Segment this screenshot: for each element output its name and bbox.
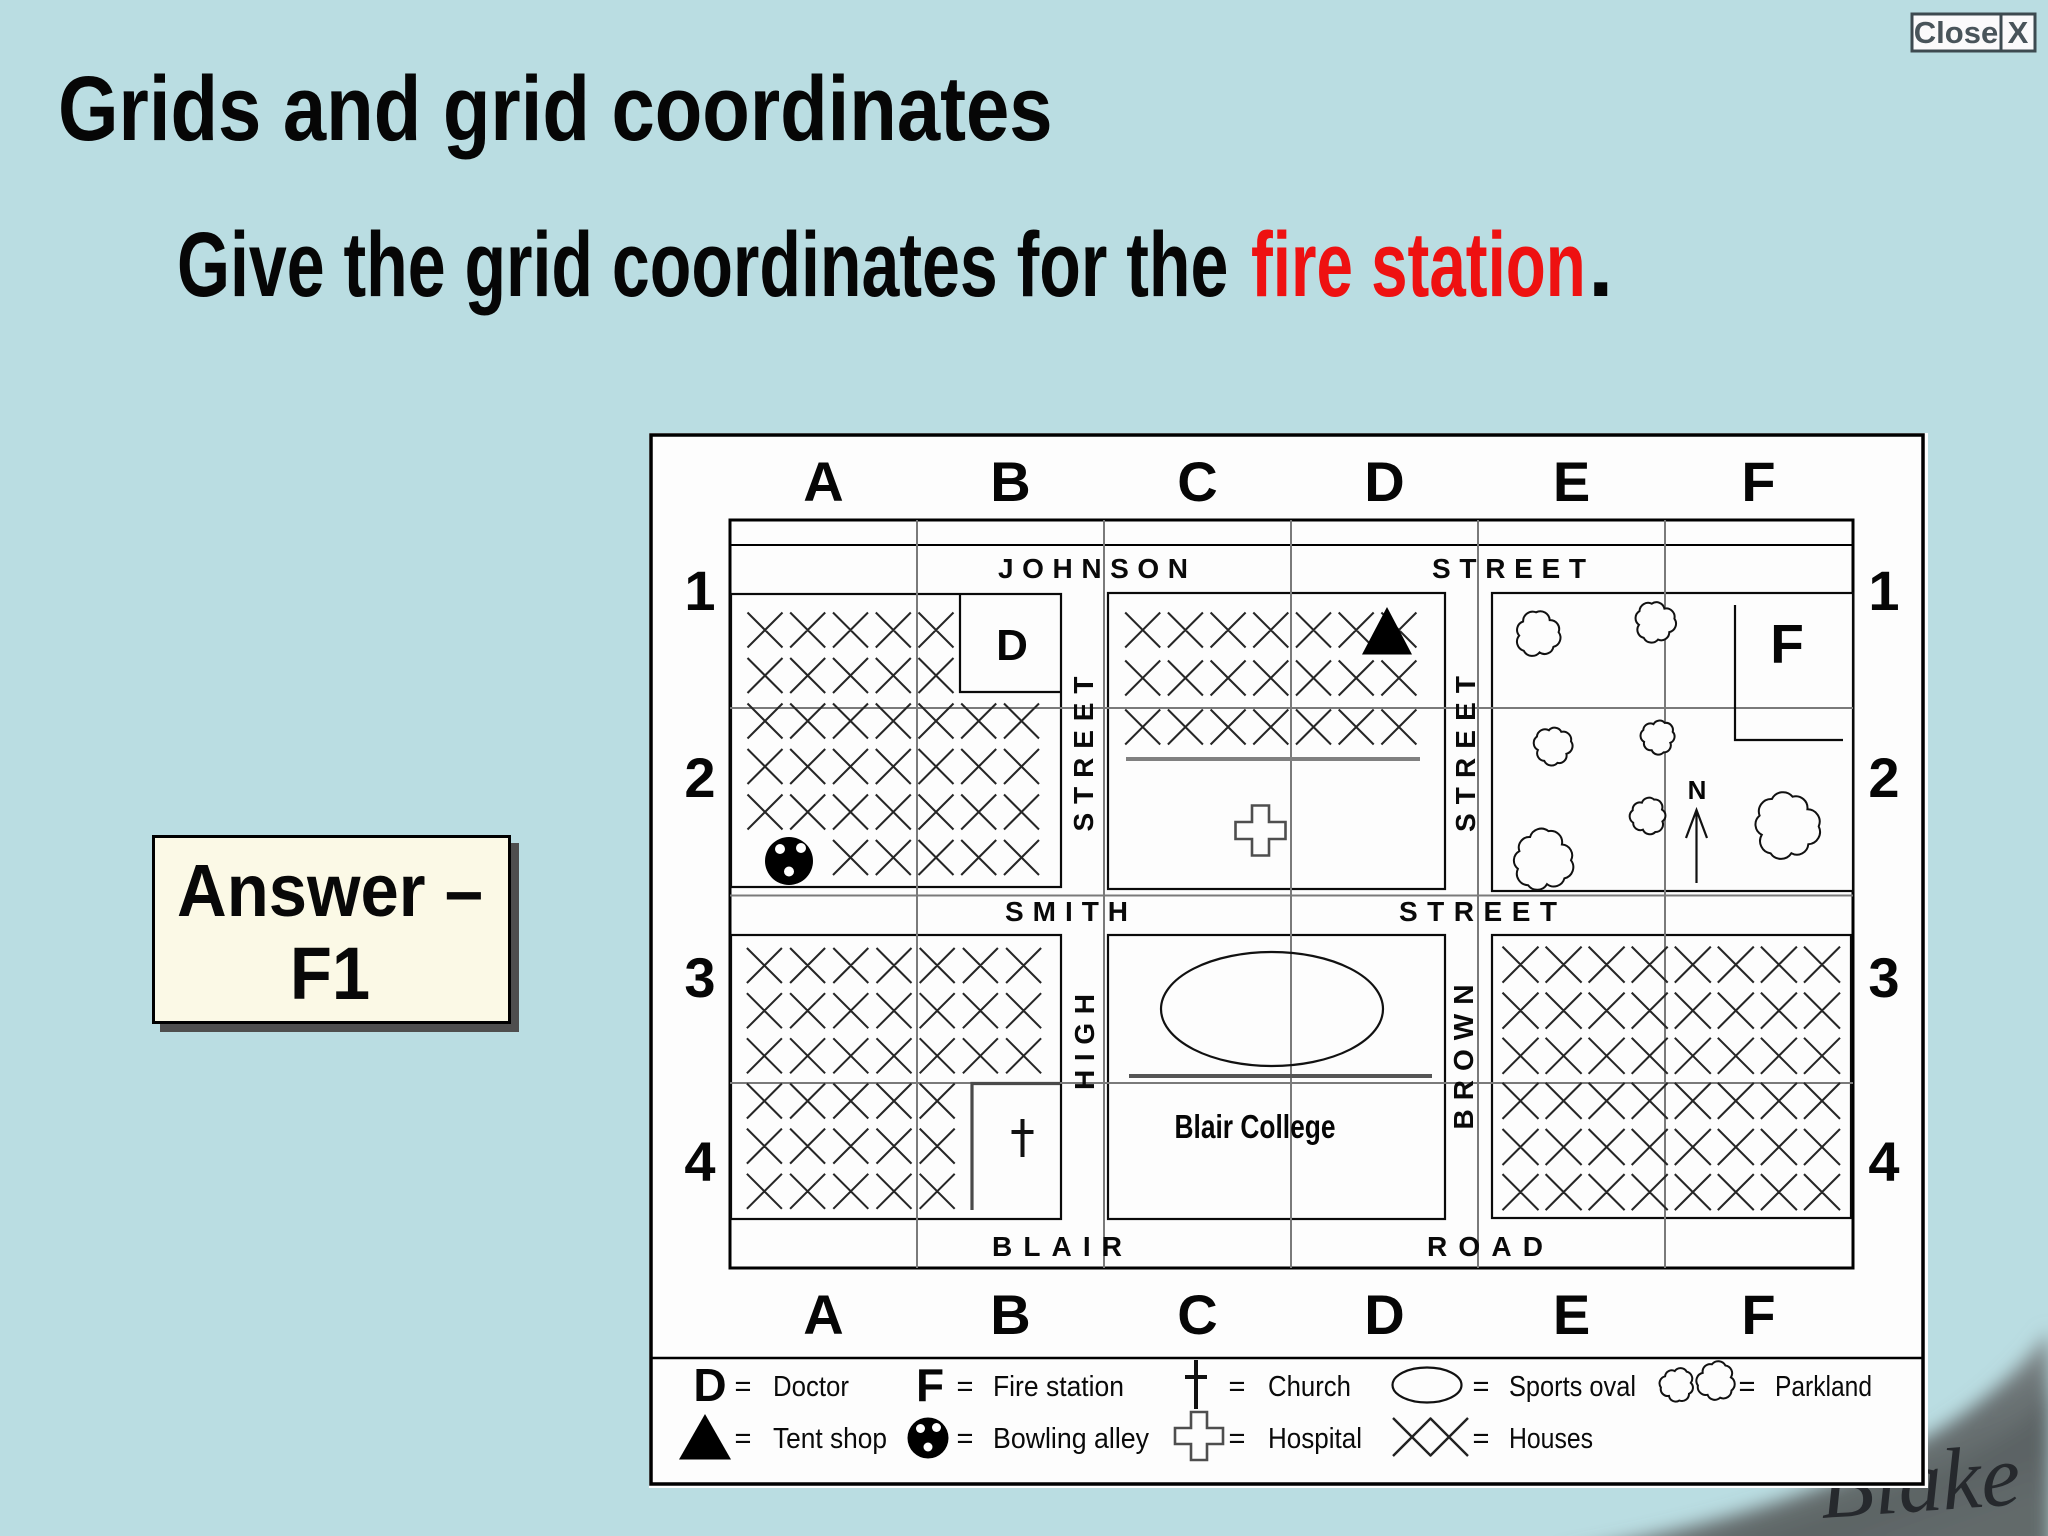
svg-text:fire station: fire station — [1251, 213, 1586, 316]
svg-text:=: = — [1739, 1371, 1756, 1403]
svg-text:Answer –: Answer – — [177, 850, 483, 933]
svg-text:Houses: Houses — [1509, 1423, 1593, 1455]
svg-text:2: 2 — [684, 746, 715, 809]
svg-text:F1: F1 — [290, 933, 370, 1016]
svg-text:D: D — [996, 621, 1028, 670]
svg-text:A: A — [803, 450, 843, 513]
svg-text:Church: Church — [1268, 1371, 1351, 1403]
svg-text:D: D — [693, 1359, 726, 1411]
svg-text:=: = — [1229, 1423, 1246, 1455]
svg-text:2: 2 — [1868, 746, 1899, 809]
svg-text:4: 4 — [1868, 1130, 1899, 1193]
svg-text:B: B — [990, 1283, 1030, 1346]
svg-text:BLAIR: BLAIR — [992, 1231, 1122, 1262]
svg-text:3: 3 — [1868, 946, 1899, 1009]
svg-text:=: = — [957, 1423, 974, 1455]
svg-text:Blair College: Blair College — [1175, 1108, 1336, 1145]
svg-text:1: 1 — [684, 559, 715, 622]
svg-text:=: = — [957, 1371, 974, 1403]
svg-text:N: N — [1688, 775, 1707, 805]
svg-text:F: F — [1741, 1283, 1775, 1346]
svg-text:.: . — [1588, 214, 1614, 316]
svg-text:=: = — [735, 1423, 752, 1455]
svg-text:X: X — [2008, 15, 2029, 50]
svg-text:D: D — [1364, 450, 1404, 513]
svg-text:Doctor: Doctor — [773, 1371, 849, 1403]
svg-text:Hospital: Hospital — [1268, 1423, 1362, 1455]
svg-text:E: E — [1553, 450, 1590, 513]
svg-text:Fire station: Fire station — [993, 1371, 1124, 1403]
svg-text:Grids and grid coordinates: Grids and grid coordinates — [58, 58, 1053, 161]
svg-text:=: = — [1229, 1371, 1246, 1403]
svg-text:C: C — [1177, 1283, 1217, 1346]
svg-text:F: F — [1770, 613, 1804, 675]
svg-text:1: 1 — [1868, 559, 1899, 622]
svg-text:=: = — [1473, 1423, 1490, 1455]
svg-text:B: B — [990, 450, 1030, 513]
svg-text:F: F — [916, 1359, 944, 1411]
svg-text:A: A — [803, 1283, 843, 1346]
svg-text:E: E — [1553, 1283, 1590, 1346]
svg-text:Bowling alley: Bowling alley — [993, 1423, 1149, 1455]
svg-text:4: 4 — [684, 1130, 715, 1193]
svg-text:Sports oval: Sports oval — [1509, 1371, 1636, 1403]
svg-text:Close: Close — [1914, 15, 1998, 50]
svg-text:=: = — [1473, 1371, 1490, 1403]
svg-text:Parkland: Parkland — [1775, 1371, 1872, 1403]
svg-text:=: = — [735, 1371, 752, 1403]
svg-text:F: F — [1741, 450, 1775, 513]
svg-text:D: D — [1364, 1283, 1404, 1346]
svg-text:HIGH: HIGH — [1069, 994, 1100, 1090]
svg-text:Tent shop: Tent shop — [773, 1423, 887, 1455]
svg-text:Give the grid coordinates for: Give the grid coordinates for the — [177, 214, 1228, 316]
svg-text:C: C — [1177, 450, 1217, 513]
svg-text:SMITH: SMITH — [1005, 896, 1128, 927]
svg-text:3: 3 — [684, 946, 715, 1009]
